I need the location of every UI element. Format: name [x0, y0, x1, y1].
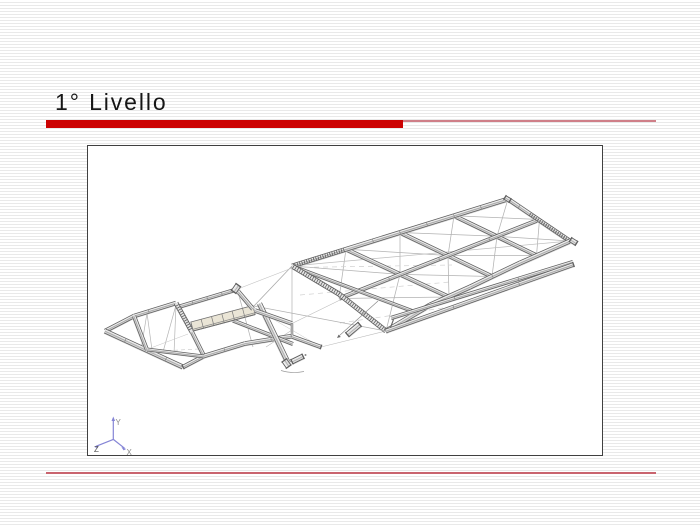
svg-text:X: X — [127, 448, 133, 457]
svg-text:Z: Z — [94, 445, 99, 454]
svg-text:Y: Y — [116, 418, 122, 427]
